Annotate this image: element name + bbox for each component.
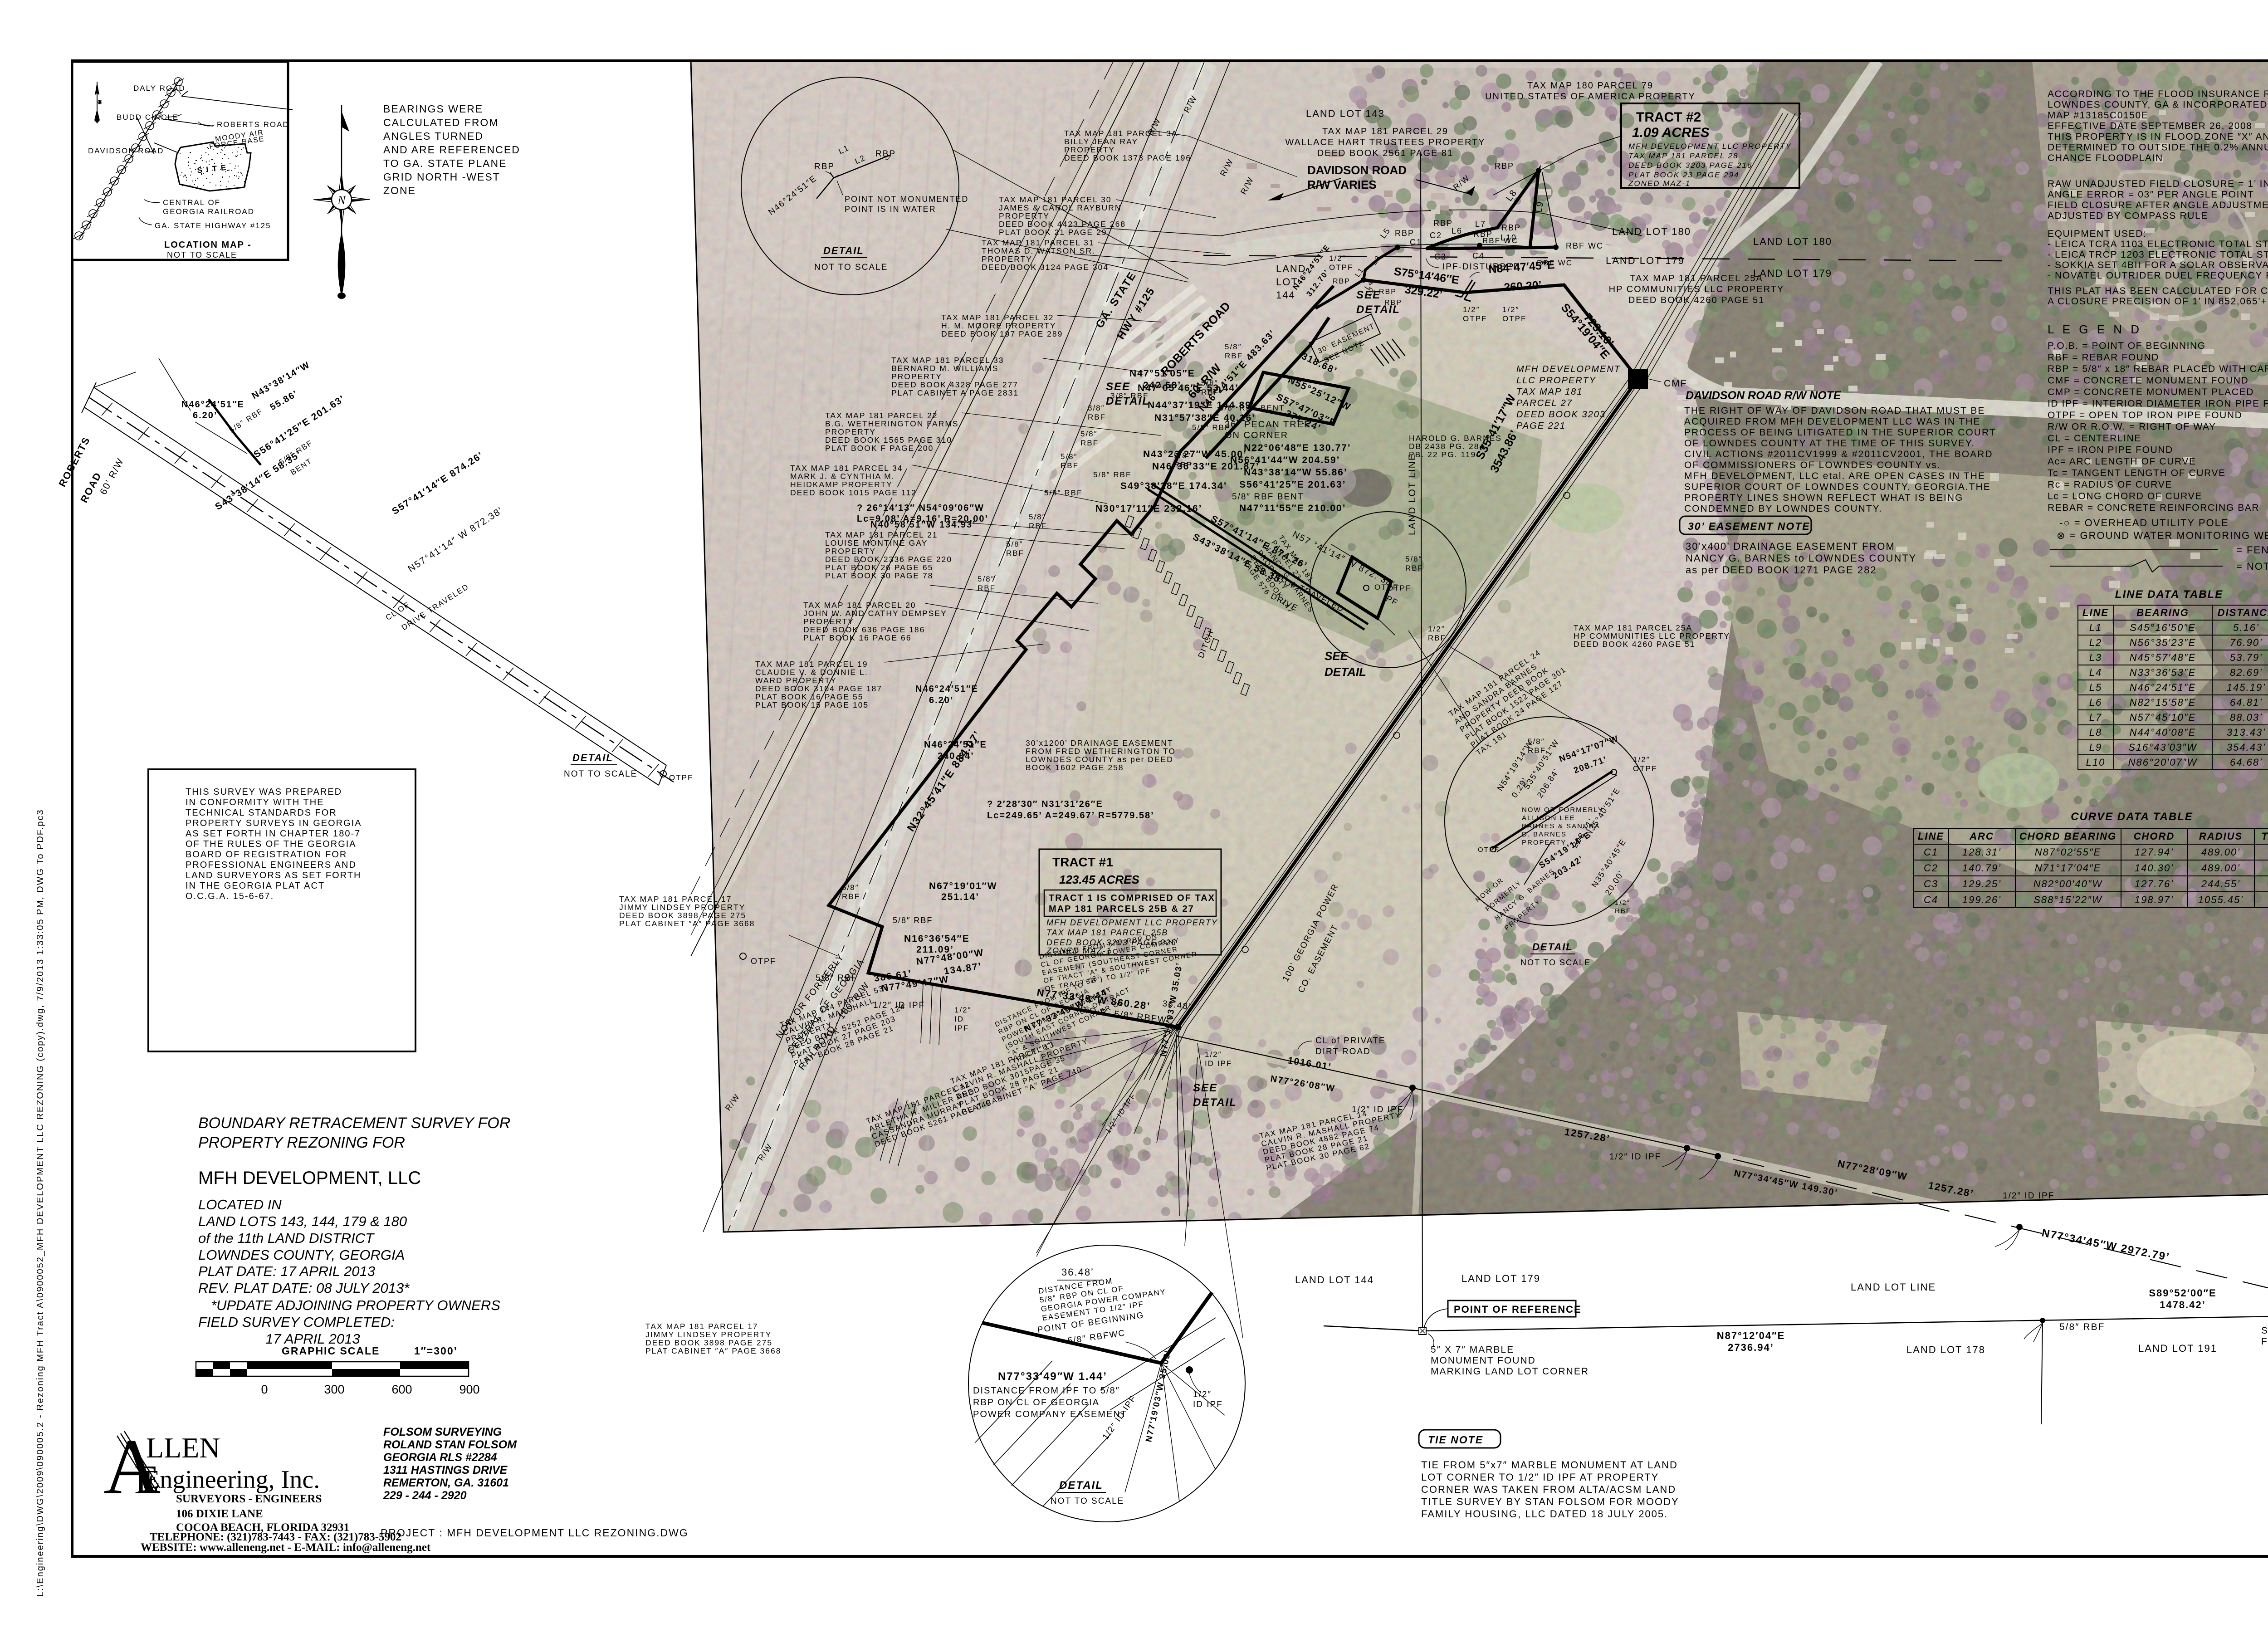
svg-text:1/2″ ID IPF: 1/2″ ID IPF [1609,1152,1661,1162]
svg-text:LOWNDES COUNTY as per DEED: LOWNDES COUNTY as per DEED [1026,755,1173,764]
svg-text:229 - 244 - 2920: 229 - 244 - 2920 [383,1489,467,1502]
svg-text:REBAR = CONCRETE REINFORCING B: REBAR = CONCRETE REINFORCING BAR [2048,503,2259,513]
svg-text:TAX MAP 181 PARCEL 21: TAX MAP 181 PARCEL 21 [825,530,938,539]
svg-text:199.26’: 199.26’ [1962,894,2001,905]
svg-text:1311 HASTINGS DRIVE: 1311 HASTINGS DRIVE [383,1464,508,1477]
svg-text:251.14’: 251.14’ [941,892,979,902]
svg-text:TAX MAP 181 PARCEL 25A: TAX MAP 181 PARCEL 25A [1574,623,1692,632]
svg-text:SEE: SEE [1325,649,1349,663]
svg-text:N47°11′55″E 210.00’: N47°11′55″E 210.00’ [1239,503,1346,513]
svg-text:DEED BOOK 636 PAGE 186: DEED BOOK 636 PAGE 186 [803,625,925,634]
svg-text:PROCESS OF BEING LITIGATED IN: PROCESS OF BEING LITIGATED IN THE SUPERI… [1684,427,1996,438]
svg-text:IN THE GEORGIA PLAT ACT: IN THE GEORGIA PLAT ACT [186,881,325,891]
svg-text:RBF = REBAR FOUND: RBF = REBAR FOUND [2048,352,2159,363]
svg-text:LOUISE MONTINE GAY: LOUISE MONTINE GAY [825,538,928,548]
svg-text:LAND LOT 178: LAND LOT 178 [1906,1344,1985,1355]
svg-text:ANGLES TURNED: ANGLES TURNED [383,130,484,142]
svg-text:CLAUDIE V. & DONNIE L.: CLAUDIE V. & DONNIE L. [755,668,868,677]
svg-text:= NOT TO SCALE: = NOT TO SCALE [2236,561,2268,572]
svg-text:ARC: ARC [1969,831,1994,842]
svg-text:GEORGIA RAILROAD: GEORGIA RAILROAD [163,207,254,216]
svg-text:OTPF: OTPF [1502,314,1526,323]
svg-text:DEED BOOK 3898 PAGE 275: DEED BOOK 3898 PAGE 275 [619,911,746,920]
svg-text:FOLSOM SURVEYING: FOLSOM SURVEYING [383,1426,502,1438]
svg-text:DETAIL: DETAIL [1059,1479,1103,1491]
svg-text:DEED BOOK 3203 PAGE 216: DEED BOOK 3203 PAGE 216 [1628,161,1752,170]
svg-text:DEED BOOK 4423 PAGE 268: DEED BOOK 4423 PAGE 268 [999,220,1126,229]
svg-text:REMERTON, GA. 31601: REMERTON, GA. 31601 [383,1477,509,1489]
svg-text:DAVIDSON ROAD R/W NOTE: DAVIDSON ROAD R/W NOTE [1686,389,1842,402]
svg-text:RBF: RBF [978,584,996,592]
svg-text:ACCORDING TO THE FLOOD INSURAN: ACCORDING TO THE FLOOD INSURANCE RATE MA… [2048,89,2268,99]
svg-text:L9: L9 [1534,200,1545,214]
svg-text:CONDEMNED BY LOWNDES COUNTY.: CONDEMNED BY LOWNDES COUNTY. [1684,504,1882,514]
svg-text:TITLE SURVEY BY STAN FOLSOM FO: TITLE SURVEY BY STAN FOLSOM FOR MOODY [1421,1496,1679,1507]
svg-text:BEARING: BEARING [2136,607,2189,618]
svg-text:DEED BOOK 4328 PAGE 277: DEED BOOK 4328 PAGE 277 [891,380,1018,389]
svg-text:B.G. WETHERINGTON FARMS: B.G. WETHERINGTON FARMS [825,419,959,428]
svg-text:BOARD OF REGISTRATION FOR: BOARD OF REGISTRATION FOR [186,850,347,860]
svg-text:CL of PRIVATE: CL of PRIVATE [1315,1036,1385,1046]
svg-text:ROBERTS ROAD: ROBERTS ROAD [217,120,289,129]
svg-text:1/2″: 1/2″ [1329,254,1346,263]
svg-text:PLAT BOOK 16 PAGE 55: PLAT BOOK 16 PAGE 55 [755,692,863,701]
svg-text:GRAPHIC SCALE: GRAPHIC SCALE [282,1345,380,1357]
svg-text:RBF: RBF [1088,413,1106,421]
svg-text:N71°17′04″E: N71°17′04″E [2035,862,2102,874]
svg-text:CURVE DATA TABLE: CURVE DATA TABLE [2071,811,2193,823]
svg-text:PLAT CABINET ″A″ PAGE 3668: PLAT CABINET ″A″ PAGE 3668 [619,919,755,928]
svg-text:5″ X 7″ MARBLE: 5″ X 7″ MARBLE [1431,1345,1514,1355]
svg-text:- LEICA TCRA 1103 ELECTRONIC T: - LEICA TCRA 1103 ELECTRONIC TOTAL STATI… [2048,239,2268,249]
svg-text:C3: C3 [1434,252,1447,261]
svg-text:TAX MAP 181 PARCEL 19: TAX MAP 181 PARCEL 19 [755,660,868,669]
svg-text:RBP: RBP [1495,161,1514,171]
svg-text:N44°37′19″E 144.89’: N44°37′19″E 144.89’ [1148,400,1255,411]
svg-text:ON CORNER: ON CORNER [1225,430,1288,440]
svg-text:LAND LOTS 143, 144, 179 & 180: LAND LOTS 143, 144, 179 & 180 [198,1213,407,1229]
svg-text:244.55’: 244.55’ [2201,878,2240,890]
svg-text:88.03’: 88.03’ [2230,712,2263,723]
svg-text:L:\Engineering\DWG\2009\090005: L:\Engineering\DWG\2009\090005.2 - Rezon… [35,809,45,1597]
svg-text:6.20’: 6.20’ [929,695,953,705]
svg-text:ADJUSTED BY COMPASS RULE: ADJUSTED BY COMPASS RULE [2048,211,2208,221]
svg-text:144: 144 [1276,289,1295,301]
svg-text:-○ = OVERHEAD UTILITY POLE: -○ = OVERHEAD UTILITY POLE [2059,517,2229,528]
svg-text:145.19’: 145.19’ [2227,682,2266,693]
svg-text:S49°38′18″E 174.34’: S49°38′18″E 174.34’ [1120,481,1227,491]
svg-text:LOWNDES COUNTY, GA & INCORPORA: LOWNDES COUNTY, GA & INCORPORATED AREAS [2048,100,2268,110]
svg-text:5.16’: 5.16’ [2233,622,2259,633]
svg-text:PROPERTY: PROPERTY [999,211,1050,220]
svg-text:0: 0 [261,1383,268,1396]
svg-text:RBF: RBF [1080,439,1099,447]
svg-text:LAND LOT 179: LAND LOT 179 [1606,255,1685,266]
svg-text:DETAIL: DETAIL [1325,665,1366,679]
svg-text:PLAT BOOK 15 PAGE 105: PLAT BOOK 15 PAGE 105 [755,700,869,709]
svg-text:240.84’: 240.84’ [938,751,974,761]
svg-text:PLAT BOOK 23 PAGE 294: PLAT BOOK 23 PAGE 294 [1628,171,1740,179]
svg-text:RBF: RBF [1006,549,1024,557]
svg-text:1″=300’: 1″=300’ [414,1345,458,1357]
svg-text:ID: ID [954,1015,964,1023]
svg-text:OTPF: OTPF [1478,846,1500,854]
svg-text:DB 2438 PG. 284: DB 2438 PG. 284 [1409,442,1485,451]
svg-text:PLAT BOOK F PAGE 200: PLAT BOOK F PAGE 200 [825,444,934,453]
svg-text:TAX MAP 181 PARCEL 20: TAX MAP 181 PARCEL 20 [803,601,916,610]
svg-text:- LEICA TRCP 1203 ELECTRONIC T: - LEICA TRCP 1203 ELECTRONIC TOTAL STATI… [2048,249,2268,260]
svg-text:ID IPF = INTERIOR DIAMETER IRO: ID IPF = INTERIOR DIAMETER IRON PIPE FOU… [2048,399,2268,409]
svg-text:IPF = IRON PIPE FOUND: IPF = IRON PIPE FOUND [2048,445,2173,455]
svg-text:DEED BOOK 3124 PAGE 304: DEED BOOK 3124 PAGE 304 [982,263,1109,272]
svg-text:N33°36′53″E: N33°36′53″E [2130,667,2196,678]
svg-text:5/8″: 5/8″ [1061,452,1078,461]
svg-text:5/8″: 5/8″ [842,883,859,892]
svg-text:53.79’: 53.79’ [2230,652,2263,663]
svg-text:L5: L5 [2089,682,2102,693]
svg-text:N82°00′40″W: N82°00′40″W [2033,878,2103,890]
svg-text:MFH DEVELOPMENT LLC PROPERTY: MFH DEVELOPMENT LLC PROPERTY [1046,918,1218,927]
svg-text:TAX MAP 181 PARCEL 28: TAX MAP 181 PARCEL 28 [1628,152,1739,160]
svg-text:WARD PROPERTY: WARD PROPERTY [755,676,837,685]
svg-text:N46°24′51″E: N46°24′51″E [924,740,987,750]
svg-text:1/2″: 1/2″ [1205,1050,1222,1059]
svg-text:900: 900 [459,1383,479,1396]
svg-text:TAX MAP 181 PARCEL 29: TAX MAP 181 PARCEL 29 [1322,127,1448,137]
svg-text:5/8″ RBF: 5/8″ RBF [1044,489,1082,497]
svg-text:JIMMY LINDSEY PROPERTY: JIMMY LINDSEY PROPERTY [645,1330,772,1339]
svg-text:OTPF: OTPF [1633,764,1657,773]
svg-text:CMF: CMF [1664,378,1687,389]
svg-text:R/W OR R.O.W. = RIGHT OF WAY: R/W OR R.O.W. = RIGHT OF WAY [2048,422,2216,432]
svg-text:TAX MAP 181 PARCEL 30: TAX MAP 181 PARCEL 30 [999,195,1112,204]
svg-text:LINE: LINE [1918,831,1944,842]
svg-text:TAX MAP 181: TAX MAP 181 [1516,387,1583,397]
svg-text:POWER COMPANY EASEMENT: POWER COMPANY EASEMENT [973,1409,1127,1419]
svg-text:L10: L10 [2086,757,2106,768]
svg-text:PROFESSIONAL ENGINEERS AND: PROFESSIONAL ENGINEERS AND [186,860,357,870]
svg-text:1/2″: 1/2″ [1463,305,1480,314]
svg-text:CALCULATED FROM: CALCULATED FROM [383,117,499,128]
svg-text:N77°33′49″W 1.44’: N77°33′49″W 1.44’ [998,1370,1107,1383]
svg-text:RAW UNADJUSTED FIELD CLOSURE =: RAW UNADJUSTED FIELD CLOSURE = 1’ IN 21,… [2048,179,2268,189]
svg-text:RBP: RBP [1333,278,1350,285]
svg-text:S88°15′22″W: S88°15′22″W [2033,894,2102,905]
svg-text:ACQUIRED FROM MFH DEVELOPMENT: ACQUIRED FROM MFH DEVELOPMENT LLC WAS IN… [1684,416,1981,427]
svg-text:LAND LOT 144: LAND LOT 144 [1295,1274,1374,1286]
svg-text:C2: C2 [1924,862,1938,874]
svg-text:L7: L7 [2089,712,2102,723]
svg-text:RBF: RBF [842,892,860,901]
svg-text:198.97’: 198.97’ [2135,894,2174,905]
svg-text:76.90’: 76.90’ [2230,637,2263,648]
svg-text:CHANCE FLOODPLAIN: CHANCE FLOODPLAIN [2048,153,2163,163]
svg-text:N16°36′54″E: N16°36′54″E [904,934,970,944]
svg-text:MAP 181 PARCELS 25B & 27: MAP 181 PARCELS 25B & 27 [1049,904,1194,914]
svg-text:RBF: RBF [1225,352,1243,360]
svg-text:1/2″: 1/2″ [1633,755,1650,764]
svg-text:BOOK 1602 PAGE 258: BOOK 1602 PAGE 258 [1026,763,1124,772]
svg-text:DEED BOOK 1373 PAGE 196: DEED BOOK 1373 PAGE 196 [1064,153,1191,162]
svg-text:P.O.B. = POINT OF BEGINNING: P.O.B. = POINT OF BEGINNING [2048,341,2206,351]
svg-text:C1: C1 [1410,238,1422,247]
svg-text:TAX MAP 180 PARCEL 79: TAX MAP 180 PARCEL 79 [1527,81,1653,91]
svg-text:? 26°14′13″ N54°09′06″W: ? 26°14′13″ N54°09′06″W [857,503,984,513]
svg-text:PLAT DATE: 17 APRIL 2013: PLAT DATE: 17 APRIL 2013 [198,1263,375,1279]
svg-text:N44°40′08″E: N44°40′08″E [2130,727,2196,738]
svg-text:17 APRIL 2013: 17 APRIL 2013 [265,1331,360,1347]
svg-text:RBP: RBP [1379,288,1397,296]
svg-text:DEED BOOK 1015 PAGE 112: DEED BOOK 1015 PAGE 112 [790,488,917,497]
svg-text:OTPF: OTPF [1329,263,1353,272]
svg-text:N46°24′51″E: N46°24′51″E [181,400,244,410]
svg-text:IPF: IPF [954,1024,969,1032]
svg-text:PROPERTY: PROPERTY [803,617,854,626]
svg-text:DEED BOOK 2336 PAGE 220: DEED BOOK 2336 PAGE 220 [825,555,952,564]
svg-text:Tc = TANGENT LENGTH OF CURVE: Tc = TANGENT LENGTH OF CURVE [2048,468,2226,479]
svg-text:Ac= ARC LENGTH OF CURVE: Ac= ARC LENGTH OF CURVE [2048,456,2196,467]
svg-text:LINE DATA TABLE: LINE DATA TABLE [2115,588,2223,601]
svg-text:LAND LOT LINE: LAND LOT LINE [1407,453,1417,535]
svg-text:N56°35′23″E: N56°35′23″E [2130,637,2196,648]
svg-text:CHORD BEARING: CHORD BEARING [2019,831,2116,842]
svg-text:30’ EASEMENT NOTE: 30’ EASEMENT NOTE [1688,520,1810,532]
svg-text:THOMAS D. WATSON SR.: THOMAS D. WATSON SR. [982,246,1095,255]
svg-text:PARCEL 27: PARCEL 27 [1516,398,1573,408]
svg-text:PLAT CABINET A PAGE 2831: PLAT CABINET A PAGE 2831 [891,388,1019,397]
svg-text:RBF: RBF [1029,522,1047,530]
svg-text:AND ARE REFERENCED: AND ARE REFERENCED [383,144,520,156]
svg-text:Engineering, Inc.: Engineering, Inc. [144,1466,320,1494]
svg-text:DETAIL: DETAIL [572,752,613,763]
svg-text:N43°23′27″W 45.00’: N43°23′27″W 45.00’ [1143,449,1247,460]
svg-text:5/8″: 5/8″ [1029,513,1046,521]
svg-text:DEED BOOK 4260 PAGE 51: DEED BOOK 4260 PAGE 51 [1628,295,1765,305]
svg-text:TANGENT: TANGENT [2262,831,2268,842]
svg-text:S56°41′25″E 201.63’: S56°41′25″E 201.63’ [1239,479,1346,490]
svg-text:DALY ROAD: DALY ROAD [133,84,186,93]
svg-text:*UPDATE ADJOINING PROPERTY OWN: *UPDATE ADJOINING PROPERTY OWNERS [211,1297,500,1313]
svg-text:PROPERTY SURVEYS IN GEORGIA: PROPERTY SURVEYS IN GEORGIA [186,818,362,828]
svg-text:2736.94’: 2736.94’ [1728,1342,1774,1353]
svg-text:NANCY G. BARNES to LOWNDES COU: NANCY G. BARNES to LOWNDES COUNTY [1686,552,1916,564]
svg-text:LAND LOT 180: LAND LOT 180 [1612,226,1691,237]
svg-text:5/8″ RBF: 5/8″ RBF [816,973,857,983]
svg-text:ID IPF: ID IPF [1193,1400,1223,1409]
svg-text:JAMES & CAROL RAYBURN: JAMES & CAROL RAYBURN [999,203,1122,212]
svg-text:PAGE 221: PAGE 221 [1516,421,1566,431]
svg-text:L1: L1 [2089,622,2102,633]
svg-text:LOT CORNER TO 1/2″ ID IPF AT P: LOT CORNER TO 1/2″ ID IPF AT PROPERTY [1421,1472,1659,1483]
svg-text:MFH DEVELOPMENT, LLC: MFH DEVELOPMENT, LLC [198,1168,421,1188]
svg-text:RBP: RBP [1395,229,1414,238]
svg-text:ZONE: ZONE [383,185,416,196]
svg-text:DETERMINED TO OUTSIDE THE 0.2%: DETERMINED TO OUTSIDE THE 0.2% ANNUAL [2048,142,2268,153]
svg-text:- SOKKIA SET 4BII FOR A SOLAR: - SOKKIA SET 4BII FOR A SOLAR OBSERVATIO… [2048,260,2268,270]
svg-text:⊗ = GROUND WATER MONITORING: ⊗ = GROUND WATER MONITORING WELL [2057,530,2268,541]
svg-text:128.31’: 128.31’ [1962,846,2001,858]
svg-text:1/2″: 1/2″ [1193,1390,1212,1399]
svg-text:THIS SURVEY WAS PREPARED: THIS SURVEY WAS PREPARED [186,787,342,797]
svg-text:L4: L4 [2089,667,2102,678]
svg-text:THIS PLAT HAS BEEN CALCULATED: THIS PLAT HAS BEEN CALCULATED FOR CLOSUR… [2048,286,2268,296]
svg-text:5/8″: 5/8″ [1528,737,1545,746]
svg-text:N40°58′51″W 134.93’: N40°58′51″W 134.93’ [870,520,976,530]
svg-text:N86°20′07″W: N86°20′07″W [2128,757,2198,768]
svg-text:DEED BOOK 3898 PAGE 275: DEED BOOK 3898 PAGE 275 [645,1338,772,1347]
svg-text:L E G E N D: L E G E N D [2048,323,2142,336]
svg-text:5/8″ RBF BENT: 5/8″ RBF BENT [1232,492,1304,502]
svg-text:64.81’: 64.81’ [2230,697,2263,708]
svg-text:CMF = CONCRETE MONUMENT FOUND: CMF = CONCRETE MONUMENT FOUND [2048,376,2248,386]
svg-text:PROPERTY: PROPERTY [891,372,942,381]
svg-text:PLAT CABINET ″A″ PAGE 3668: PLAT CABINET ″A″ PAGE 3668 [645,1346,781,1355]
svg-text:123.45 ACRES: 123.45 ACRES [1059,873,1139,886]
svg-text:OTPF: OTPF [1463,314,1487,323]
svg-text:POINT NOT MONUMENTED: POINT NOT MONUMENTED [845,195,968,204]
svg-text:PB. 22 PG. 119: PB. 22 PG. 119 [1409,450,1476,459]
svg-text:260.20’: 260.20’ [1503,279,1542,294]
svg-text:WALLACE HART TRUSTEES PROPERTY: WALLACE HART TRUSTEES PROPERTY [1285,137,1485,147]
svg-text:N45°57′48″E: N45°57′48″E [2130,652,2196,663]
svg-text:SEE: SEE [1106,381,1130,393]
svg-text:DETAIL: DETAIL [1532,941,1573,953]
svg-text:C4: C4 [1472,251,1485,260]
svg-text:HP COMMUNITIES LLC PROPERTY: HP COMMUNITIES LLC PROPERTY [1609,284,1784,294]
svg-text:SEE: SEE [1356,289,1381,301]
svg-text:600: 600 [391,1383,412,1396]
svg-text:MFH DEVELOPMENT, LLC etal. ARE: MFH DEVELOPMENT, LLC etal. ARE OPEN CASE… [1684,471,1985,481]
svg-text:NOT TO SCALE: NOT TO SCALE [1520,958,1591,967]
svg-text:DIRT ROAD: DIRT ROAD [1315,1047,1371,1056]
svg-text:DISTANCE FROM IPF TO 5/8″: DISTANCE FROM IPF TO 5/8″ [973,1386,1120,1396]
svg-text:TAX MAP 181 PARCEL 31: TAX MAP 181 PARCEL 31 [982,238,1095,247]
svg-text:O.C.G.A. 15-6-67.: O.C.G.A. 15-6-67. [186,891,274,901]
svg-text:242.68’: 242.68’ [1143,380,1181,391]
svg-text:LAND LOT 191: LAND LOT 191 [2138,1343,2217,1354]
svg-text:TRACT #2: TRACT #2 [1636,110,1701,125]
svg-text:NOT TO SCALE: NOT TO SCALE [1051,1496,1124,1506]
svg-text:RBF: RBF [1405,564,1423,572]
svg-text:DISTANCE: DISTANCE [2218,607,2268,618]
svg-text:64.68’: 64.68’ [2230,757,2263,768]
svg-text:PLAT BOOK 30 PAGE 78: PLAT BOOK 30 PAGE 78 [825,571,933,580]
svg-text:RBP: RBP [875,149,896,159]
svg-text:H. M. MOORE PROPERTY: H. M. MOORE PROPERTY [941,321,1056,330]
svg-text:ZONED MAZ-1: ZONED MAZ-1 [1628,179,1691,188]
svg-text:POINT IS IN WATER: POINT IS IN WATER [845,205,936,214]
svg-text:of the 11th LAND DISTRICT: of the 11th LAND DISTRICT [198,1230,375,1246]
svg-text:1/2″: 1/2″ [1428,625,1445,633]
svg-text:30’x1200’ DRAINAGE EASEMENT: 30’x1200’ DRAINAGE EASEMENT [1026,738,1173,748]
svg-text:PLAT BOOK 21 PAGE 29: PLAT BOOK 21 PAGE 29 [999,228,1107,237]
svg-text:LLEN: LLEN [146,1432,220,1464]
svg-text:5/8″ RBF: 5/8″ RBF [1192,423,1230,432]
svg-text:LAND LOT 179: LAND LOT 179 [1753,268,1832,279]
svg-text:RADIUS: RADIUS [2199,831,2243,842]
svg-text:PROJECT : MFH DEVELOPMENT LLC: PROJECT : MFH DEVELOPMENT LLC REZONING.D… [381,1527,689,1539]
svg-text:489.00’: 489.00’ [2201,862,2240,874]
svg-text:NOT TO SCALE: NOT TO SCALE [814,263,888,272]
svg-text:RBF: RBF [1061,461,1079,470]
svg-text:L9: L9 [2089,742,2102,753]
svg-text:RBF: RBF [1615,907,1631,915]
svg-text:5/8″ RBF: 5/8″ RBF [2059,1322,2105,1332]
svg-text:REV. PLAT DATE: 08 JULY 2013*: REV. PLAT DATE: 08 JULY 2013* [198,1280,410,1296]
svg-text:GA. STATE HIGHWAY #125: GA. STATE HIGHWAY #125 [155,221,271,230]
svg-text:N: N [337,194,346,207]
svg-text:5/8″: 5/8″ [1405,555,1422,563]
svg-text:NOT TO SCALE: NOT TO SCALE [167,250,237,259]
svg-text:FAMILY HOUSING, LLC DATED 18: FAMILY HOUSING, LLC DATED 18 JULY 2005. [1421,1508,1668,1520]
svg-text:THE RIGHT OF WAY OF DAVIDSON R: THE RIGHT OF WAY OF DAVIDSON ROAD THAT M… [1684,406,1985,416]
svg-text:BUDD CIRCLE: BUDD CIRCLE [117,113,179,122]
svg-text:N46°24′51″E: N46°24′51″E [2130,682,2196,693]
svg-text:CL = CENTERLINE: CL = CENTERLINE [2048,433,2141,444]
svg-text:OTPF: OTPF [1387,584,1411,592]
svg-text:FENCE POST FOUND: FENCE POST FOUND [2261,1336,2268,1347]
svg-text:L6: L6 [2089,697,2102,708]
svg-text:3/8″ RBF: 3/8″ RBF [1110,391,1149,400]
svg-text:DAVIDSON ROAD: DAVIDSON ROAD [88,147,164,155]
svg-text:BOUNDARY RETRACEMENT SURVEY FO: BOUNDARY RETRACEMENT SURVEY FOR [198,1115,510,1132]
svg-text:5/8″: 5/8″ [1225,342,1242,351]
svg-text:NOT TO SCALE: NOT TO SCALE [564,769,637,779]
svg-text:RBP: RBP [1501,223,1521,232]
svg-text:C3: C3 [1924,878,1938,890]
svg-text:FIELD CLOSURE AFTER ANGLE ADJU: FIELD CLOSURE AFTER ANGLE ADJUSTMENT= 1’… [2048,200,2268,210]
svg-text:CMP = CONCRETE MONUMENT PLACED: CMP = CONCRETE MONUMENT PLACED [2048,387,2254,397]
svg-text:N46°24′51″E: N46°24′51″E [915,684,978,694]
svg-text:127.76’: 127.76’ [2135,878,2174,890]
svg-text:TAX MAP 181 PARCEL 22: TAX MAP 181 PARCEL 22 [825,411,938,420]
svg-text:C4: C4 [1924,894,1938,905]
svg-text:LOCATION MAP -: LOCATION MAP - [164,240,252,250]
svg-text:BERNARD M. WILLIAMS: BERNARD M. WILLIAMS [891,364,998,373]
svg-text:RBF: RBF [1428,634,1446,642]
svg-text:S45°16′50″E: S45°16′50″E [2130,622,2195,633]
svg-text:140.30’: 140.30’ [2135,862,2174,874]
svg-text:N31°57′38″E 40.16’: N31°57′38″E 40.16’ [1154,413,1256,423]
svg-text:HAROLD G. BARNES: HAROLD G. BARNES [1409,434,1502,443]
svg-text:6.20’: 6.20’ [193,411,217,420]
svg-text:5/8″ RBF: 5/8″ RBF [893,916,933,925]
svg-text:ANGLE ERROR = 03″ PER ANGLE PO: ANGLE ERROR = 03″ PER ANGLE POINT [2048,190,2254,200]
svg-text:DETAIL: DETAIL [823,245,864,256]
svg-text:LOCATED IN: LOCATED IN [198,1197,282,1213]
svg-text:- NOVATEL OUTRIDER DUEL FREQUE: - NOVATEL OUTRIDER DUEL FREQUENCY RTK GP… [2048,270,2268,281]
svg-text:RBP = 5/8″ x 18″ REBAR PLACED: RBP = 5/8″ x 18″ REBAR PLACED WITH CAP #… [2048,364,2268,374]
svg-text:N57°45′10″E: N57°45′10″E [2130,712,2196,723]
svg-text:DETAIL: DETAIL [1356,303,1400,316]
svg-text:TECHNICAL STANDARDS FOR: TECHNICAL STANDARDS FOR [186,808,337,818]
svg-text:LAND LOT 179: LAND LOT 179 [1461,1273,1540,1284]
svg-text:SUPERIOR COURT OF LOWNDES COUN: SUPERIOR COURT OF LOWNDES COUNTY, GEORGI… [1684,482,1991,492]
svg-text:LAND LOT 180: LAND LOT 180 [1753,236,1832,247]
svg-text:BILLY JEAN RAY: BILLY JEAN RAY [1064,137,1138,146]
svg-text:30’x400’ DRAINAGE EASEMENT FRO: 30’x400’ DRAINAGE EASEMENT FROM [1686,541,1895,552]
svg-text:PROPERTY: PROPERTY [825,427,876,436]
svg-text:BARNES & SANDRA: BARNES & SANDRA [1522,822,1600,830]
svg-text:5/8″: 5/8″ [1080,430,1098,438]
svg-text:N22°06′48″E 130.77’: N22°06′48″E 130.77’ [1244,443,1351,453]
svg-text:129.25’: 129.25’ [1962,878,2001,890]
svg-text:Lc = LONG CHORD OF CURVE: Lc = LONG CHORD OF CURVE [2048,491,2202,502]
svg-text:LINE: LINE [2082,607,2109,618]
svg-text:N87°02′55″E: N87°02′55″E [2035,846,2102,858]
svg-text:IN CONFORMITY WITH THE: IN CONFORMITY WITH THE [186,797,324,807]
svg-text:ROLAND STAN FOLSOM: ROLAND STAN FOLSOM [383,1438,517,1451]
